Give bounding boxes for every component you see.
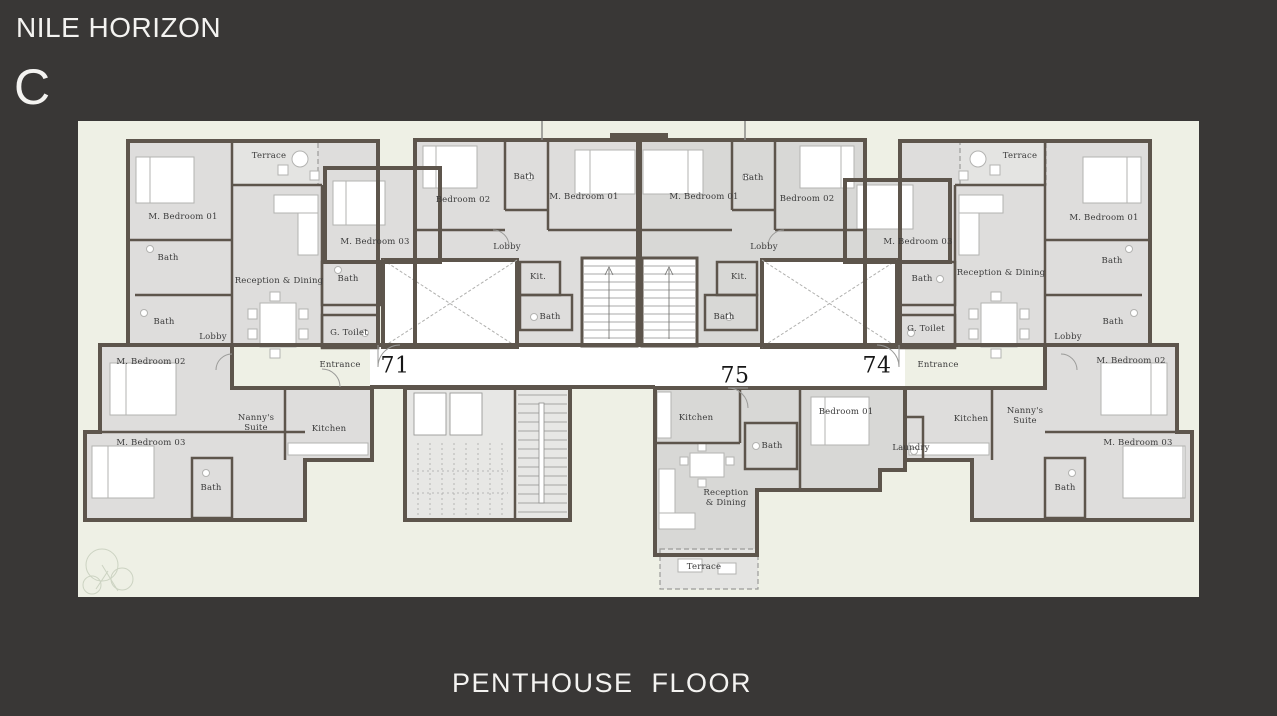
room-label: M. Bedroom 02 [1096,356,1165,366]
room-label: M. Bedroom 01 [1069,213,1138,223]
room-label: G. Toilet [330,328,368,338]
plan-labels-layer: M. Bedroom 01TerraceBathReception & Dini… [78,121,1199,597]
room-label: Bath [513,172,534,182]
room-label: Bath [539,312,560,322]
room-label: Bedroom 02 [780,194,835,204]
room-label: Kit. [731,272,747,282]
room-label: M. Bedroom 01 [549,192,618,202]
room-label: M. Bedroom 03 [116,438,185,448]
room-label: Reception& Dining [703,488,748,508]
room-label: Bath [1102,317,1123,327]
room-label: Lobby [493,242,520,252]
room-label: Nanny'sSuite [1007,406,1043,426]
room-label: Bath [1101,256,1122,266]
room-label: Bath [911,274,932,284]
room-label: Bath [761,441,782,451]
building-letter: C [14,58,50,116]
room-label: Reception & Dining [235,276,324,286]
room-label: G. Toilet [907,324,945,334]
room-label: M. Bedroom 03 [1103,438,1172,448]
slide: { "header": { "project_title": "NILE HOR… [0,0,1277,716]
room-label: M. Bedroom 01 [669,192,738,202]
room-label: Laundry [892,443,929,453]
room-label: M. Bedroom 01 [148,212,217,222]
unit-number: 75 [721,364,750,389]
room-label: Bath [157,253,178,263]
room-label: Bedroom 01 [819,407,874,417]
room-label: Bath [337,274,358,284]
room-label: M. Bedroom 03 [883,237,952,247]
room-label: M. Bedroom 02 [116,357,185,367]
room-label: Kitchen [679,413,714,423]
room-label: Lobby [199,332,226,342]
room-label: Bath [200,483,221,493]
room-label: Bath [1054,483,1075,493]
floor-plan-canvas: M. Bedroom 01TerraceBathReception & Dini… [78,121,1199,597]
room-label: Bath [153,317,174,327]
room-label: Kit. [530,272,546,282]
room-label: Lobby [1054,332,1081,342]
room-label: Kitchen [954,414,989,424]
room-label: Terrace [687,562,721,572]
room-label: Bedroom 02 [436,195,491,205]
room-label: Terrace [252,151,286,161]
room-label: Reception & Dining [957,268,1046,278]
unit-number: 71 [381,354,410,379]
unit-number: 74 [863,354,892,379]
room-label: Terrace [1003,151,1037,161]
room-label: Bath [742,173,763,183]
room-label: Entrance [319,360,360,370]
room-label: Kitchen [312,424,347,434]
project-title: NILE HORIZON [16,12,221,44]
room-label: Entrance [917,360,958,370]
floor-title: PENTHOUSE FLOOR [452,668,752,699]
room-label: M. Bedroom 03 [340,237,409,247]
header: NILE HORIZON [16,12,221,44]
room-label: Lobby [750,242,777,252]
room-label: Nanny'sSuite [238,413,274,433]
room-label: Bath [713,312,734,322]
